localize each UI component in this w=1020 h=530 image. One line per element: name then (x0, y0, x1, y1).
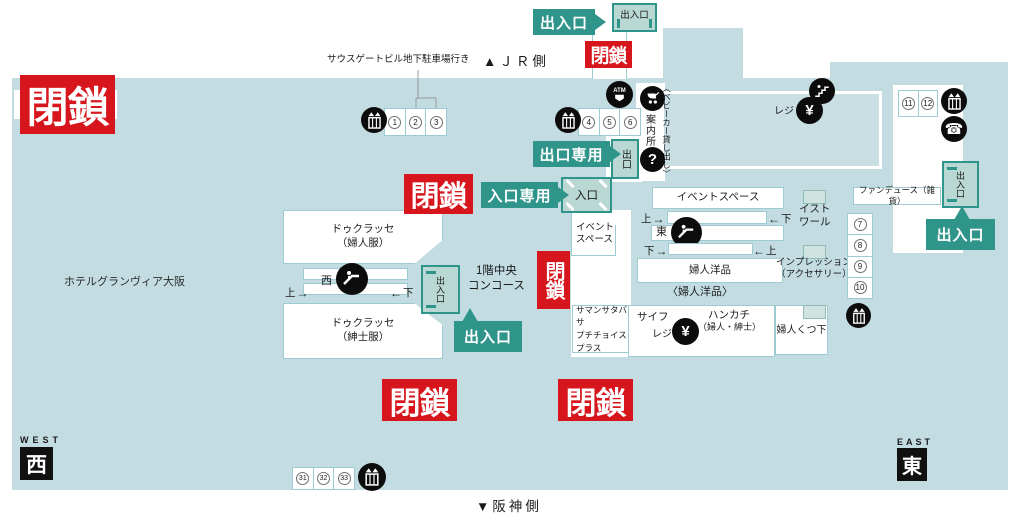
gate-cell: 2 (405, 109, 426, 135)
jr-side-label: ▲ＪＲ側 (483, 54, 549, 71)
gate-cell: 32 (313, 468, 334, 489)
callout-doorway-north: 出入口 (533, 9, 595, 35)
register-top-label: レジ (774, 106, 794, 119)
question-icon: ? (640, 147, 665, 172)
doorway-box-east: 出入口 (942, 161, 979, 208)
east-up-arrow2: ← (753, 244, 765, 258)
escalator-icon (336, 263, 368, 295)
east-escalator-up-left: 上→ (641, 211, 665, 226)
gate-cell: 1 (385, 109, 405, 135)
doorway-box-west: 出入口 (421, 265, 460, 314)
gate-cell: 9 (848, 256, 872, 277)
gate-number-6: 6 (624, 116, 637, 129)
yen-glyph: ¥ (805, 103, 813, 118)
impression-line2: （アクセサリー） (776, 269, 852, 280)
gate-cell: 10 (848, 277, 872, 298)
callout-arrow (954, 206, 970, 220)
east-kanji: 東 (902, 450, 922, 479)
callout-arrow (595, 14, 606, 30)
gate-number-8: 8 (854, 239, 867, 252)
room-du-classe-women: ドゥクラッセ （婦人服） (283, 210, 443, 264)
east-escalator-kanji: 東 (656, 226, 667, 240)
elevator-icon (361, 107, 387, 133)
room-event-space-small: イベント スペース (571, 212, 616, 256)
callout-doorway-east: 出入口 (926, 219, 995, 250)
entrance-box-north: 出入口 (612, 3, 657, 32)
west-kanji-badge: 西 (20, 447, 53, 480)
callout-entrance-only-text: 入口専用 (487, 185, 551, 206)
room-event-space-small-line2: スペース (576, 234, 613, 246)
room-event-space-label: イベントスペース (677, 191, 760, 205)
gate-cell: 5 (599, 109, 620, 135)
histoire-line1: イスト (799, 203, 830, 215)
callout-exit-only: 出口専用 (533, 141, 610, 167)
gate-cell: 8 (848, 234, 872, 255)
closed-label-entrance: 閉鎖 (404, 174, 473, 214)
impression-label: インプレッション （アクセサリー） (776, 257, 852, 282)
closed-label-south-east: 閉鎖 (558, 379, 633, 421)
gate-tick (947, 199, 957, 202)
gate-cell: 4 (579, 109, 599, 135)
closed-text: 閉鎖 (539, 261, 568, 299)
atm-icon: ATM (606, 81, 633, 108)
room-samantha: サマンサタバサ プチチョイス プラス (572, 305, 629, 353)
callout-doorway-east-text: 出入口 (936, 224, 984, 245)
concourse-line2: コンコース (468, 280, 525, 292)
room-fondue-label: ファンデュース（雑貨） (854, 185, 940, 207)
gate-tick (947, 167, 957, 170)
room-du-classe-men-line1: ドゥクラッセ (332, 317, 395, 331)
west-down-text: 下 (403, 285, 414, 300)
elevator-icon (846, 303, 871, 328)
east-escalator-up-right: ←上 (753, 243, 777, 258)
gate-number-9: 9 (854, 260, 867, 273)
register-label: レジ (652, 329, 672, 342)
closed-label-west-main: 閉鎖 (20, 75, 115, 134)
room-fondue: ファンデュース（雑貨） (853, 187, 941, 205)
yen-icon: ¥ (672, 318, 699, 345)
gate-cell: 31 (293, 468, 313, 489)
impression-pillar-bottom (803, 305, 826, 319)
gate-cell: 3 (425, 109, 446, 135)
east-up-arrow: → (653, 212, 665, 226)
room-fujin-yohin: 婦人洋品 (637, 258, 783, 283)
room-fujin-yohin-label: 婦人洋品 (689, 264, 731, 278)
hotel-label: ホテルグランヴィア大阪 (64, 276, 185, 290)
gate-number-2: 2 (409, 116, 422, 129)
closed-text: 閉鎖 (390, 378, 450, 423)
atm-shape (613, 94, 626, 102)
callout-entrance-only: 入口専用 (481, 182, 558, 208)
gate-cell: 33 (333, 468, 354, 489)
doorway-box-east-label: 出入口 (954, 171, 967, 198)
southgate-note: サウスゲートビル地下駐車場行き (327, 54, 470, 66)
impression-line1: インプレッション (776, 257, 852, 268)
west-escalator-down-label: ←下 (390, 285, 414, 300)
closed-text: 閉鎖 (590, 41, 626, 68)
room-du-classe-women-line2: （婦人服） (337, 237, 390, 251)
gate-tick (426, 271, 436, 274)
gate-number-12: 12 (921, 97, 934, 110)
east-escalator-down-right: ←下 (768, 211, 792, 226)
gate-tick (426, 305, 436, 308)
elevator-icon (941, 88, 967, 114)
east-up-text: 上 (641, 211, 652, 226)
room-event-space: イベントスペース (652, 187, 784, 209)
southgate-connector-lines (398, 66, 448, 112)
room-du-classe-women-line1: ドゥクラッセ (332, 223, 395, 237)
gate-group-7-10: 7 8 9 10 (847, 213, 873, 299)
west-escalator-kanji: 西 (321, 275, 332, 289)
gate-cell: 12 (918, 91, 938, 116)
floor-patch-top-right (830, 62, 1008, 80)
east-down-text2: 下 (644, 243, 655, 258)
gate-tick (649, 19, 652, 28)
stroller-note: 〈ベビーカー貸し出し〉 (662, 84, 671, 159)
floor-patch-top-center (663, 28, 743, 80)
gate-number-10: 10 (854, 281, 867, 294)
east-down-text: 下 (781, 211, 792, 226)
gate-number-7: 7 (854, 218, 867, 231)
gate-number-32: 32 (317, 472, 330, 485)
callout-doorway-north-text: 出入口 (540, 12, 588, 33)
west-up-text: 上 (285, 285, 296, 300)
west-down-arrow: ← (390, 286, 402, 300)
gate-number-3: 3 (430, 116, 443, 129)
room-samantha-line3: プラス (576, 342, 601, 355)
closed-label-north: 閉鎖 (585, 41, 632, 68)
east-escalator-down-left: 下→ (644, 243, 668, 258)
gate-cell: 7 (848, 214, 872, 234)
room-samantha-line1: サマンサタバサ (576, 304, 628, 330)
phone-icon: ☎ (941, 116, 967, 142)
yen-glyph: ¥ (681, 324, 689, 339)
saifu-label: サイフ (637, 311, 669, 324)
gate-cell: 11 (899, 91, 918, 116)
room-samantha-line2: プチチョイス (576, 329, 627, 342)
east-escalator-strip-2 (668, 243, 753, 255)
fujin-yohin-note: 〈婦人洋品〉 (667, 286, 733, 300)
east-down-arrow: ← (768, 212, 780, 226)
gate-group-1-3: 1 2 3 (384, 108, 447, 136)
room-du-classe-men-line2: （紳士服） (337, 331, 390, 345)
west-up-arrow: → (297, 286, 309, 300)
closed-label-central: 閉鎖 (537, 251, 570, 309)
callout-arrow (610, 146, 621, 162)
east-up-text2: 上 (766, 243, 777, 258)
floor-map: ドゥクラッセ （婦人服） ドゥクラッセ （紳士服） イベントスペース イベント … (0, 0, 1020, 530)
room-fujin-kutsushita-label: 婦人くつ下 (777, 324, 827, 337)
west-en-label: WEST (20, 435, 62, 446)
yen-icon: ¥ (796, 97, 823, 124)
phone-glyph: ☎ (945, 122, 964, 137)
gate-number-11: 11 (902, 97, 915, 110)
entrance-hatch (598, 179, 607, 188)
concourse-line1: 1階中央 (476, 265, 517, 277)
info-desk-label: 案内所 (642, 114, 655, 147)
histoire-label: イスト ワール (799, 203, 831, 228)
closed-text: 閉鎖 (566, 378, 626, 423)
elevator-icon (555, 107, 581, 133)
entrance-box-north-label: 出入口 (620, 10, 649, 21)
entrance-hatch (598, 202, 607, 211)
gate-number-4: 4 (582, 116, 595, 129)
east-en-label: EAST (897, 437, 933, 448)
histoire-pillar-top (803, 190, 826, 204)
gate-number-31: 31 (296, 472, 309, 485)
doorway-box-west-label: 出入口 (434, 276, 447, 303)
entrance-hatch (565, 202, 574, 211)
callout-doorway-west-text: 出入口 (464, 326, 512, 347)
callout-doorway-west: 出入口 (454, 321, 522, 352)
gate-number-33: 33 (338, 472, 351, 485)
gate-number-5: 5 (603, 116, 616, 129)
backroom-top-right (661, 91, 882, 169)
east-down-arrow2: → (656, 244, 668, 258)
callout-arrow (558, 187, 569, 203)
callout-exit-only-text: 出口専用 (539, 144, 603, 165)
closed-text: 閉鎖 (26, 74, 108, 135)
hanshin-side-label: ▼阪神側 (476, 499, 542, 516)
room-event-space-small-line1: イベント (576, 222, 614, 234)
question-glyph: ? (648, 152, 657, 167)
gate-number-1: 1 (388, 116, 401, 129)
gate-cell: 6 (619, 109, 640, 135)
gate-group-11-12: 11 12 (898, 90, 938, 117)
handkerchief-line2: （婦人・紳士） (698, 322, 761, 333)
west-escalator-up-label: 上→ (285, 285, 309, 300)
west-kanji: 西 (26, 449, 47, 479)
entrance-box-label: 入口 (575, 187, 598, 203)
handkerchief-line1: ハンカチ (708, 309, 750, 322)
concourse-label: 1階中央 コンコース (468, 264, 525, 294)
histoire-line2: ワール (799, 216, 831, 228)
gate-tick (617, 19, 620, 28)
gate-group-4-6: 4 5 6 (578, 108, 641, 136)
callout-arrow (462, 308, 478, 322)
elevator-icon (358, 463, 386, 491)
east-kanji-badge: 東 (897, 448, 927, 481)
closed-text: 閉鎖 (410, 173, 466, 215)
room-du-classe-men: ドゥクラッセ （紳士服） (283, 303, 443, 359)
closed-label-south-west: 閉鎖 (382, 379, 457, 421)
gate-group-31-33: 31 32 33 (292, 467, 355, 490)
